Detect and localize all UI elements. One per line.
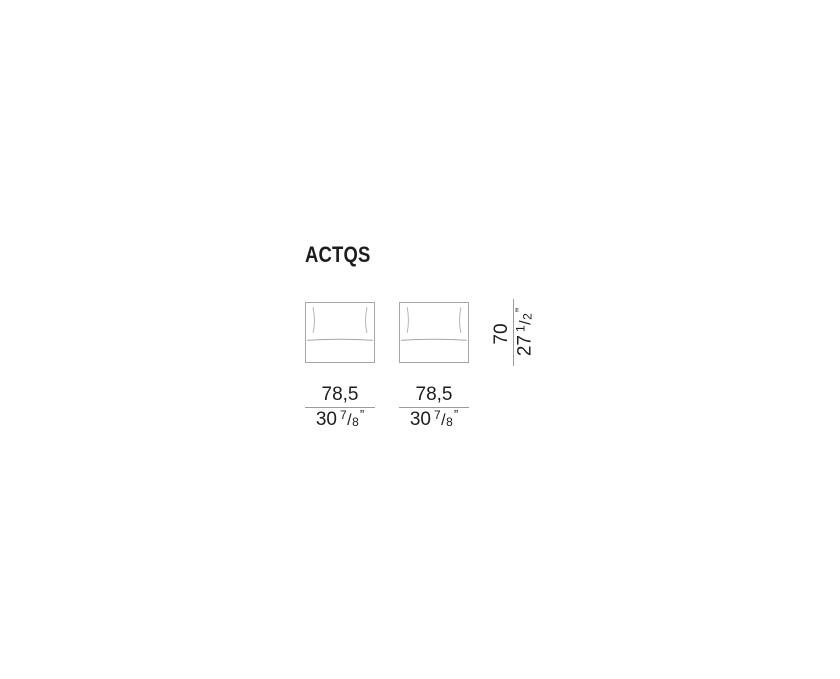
- fraction-denominator: 8: [446, 415, 453, 429]
- height-metric-value: 70: [492, 323, 512, 344]
- width-metric-value: 78,5: [305, 385, 375, 407]
- fraction-slash: /: [518, 320, 535, 324]
- imperial-whole: 27: [515, 335, 536, 356]
- module-outline: [306, 303, 375, 363]
- product-code-title: ACTQS: [305, 244, 371, 266]
- inch-mark: ”: [454, 407, 458, 422]
- fraction-denominator: 2: [521, 313, 535, 320]
- height-imperial-value: 271/2”: [516, 308, 537, 356]
- inch-mark: ”: [513, 308, 528, 312]
- width-imperial-value: 307/8”: [305, 408, 375, 431]
- inch-mark: ”: [360, 407, 364, 422]
- width-metric-value: 78,5: [399, 385, 469, 407]
- furniture-spec-sheet: ACTQS 78,5 307/8” 78,5 307/8” 70 271/2”: [0, 0, 840, 679]
- fraction-numerator: 1: [514, 325, 528, 332]
- width-dimension-1: 78,5 307/8”: [305, 385, 375, 431]
- sofa-module-front-view-2: [399, 302, 469, 363]
- fraction-slash: /: [347, 412, 351, 429]
- width-imperial-value: 307/8”: [399, 408, 469, 431]
- fraction-denominator: 8: [352, 415, 359, 429]
- module-outline: [400, 303, 469, 363]
- fraction-numerator: 7: [434, 408, 441, 422]
- sofa-module-front-view-1: [305, 302, 375, 363]
- fraction-slash: /: [441, 412, 445, 429]
- imperial-whole: 30: [316, 409, 337, 430]
- imperial-whole: 30: [410, 409, 431, 430]
- width-dimension-2: 78,5 307/8”: [399, 385, 469, 431]
- fraction-numerator: 7: [340, 408, 347, 422]
